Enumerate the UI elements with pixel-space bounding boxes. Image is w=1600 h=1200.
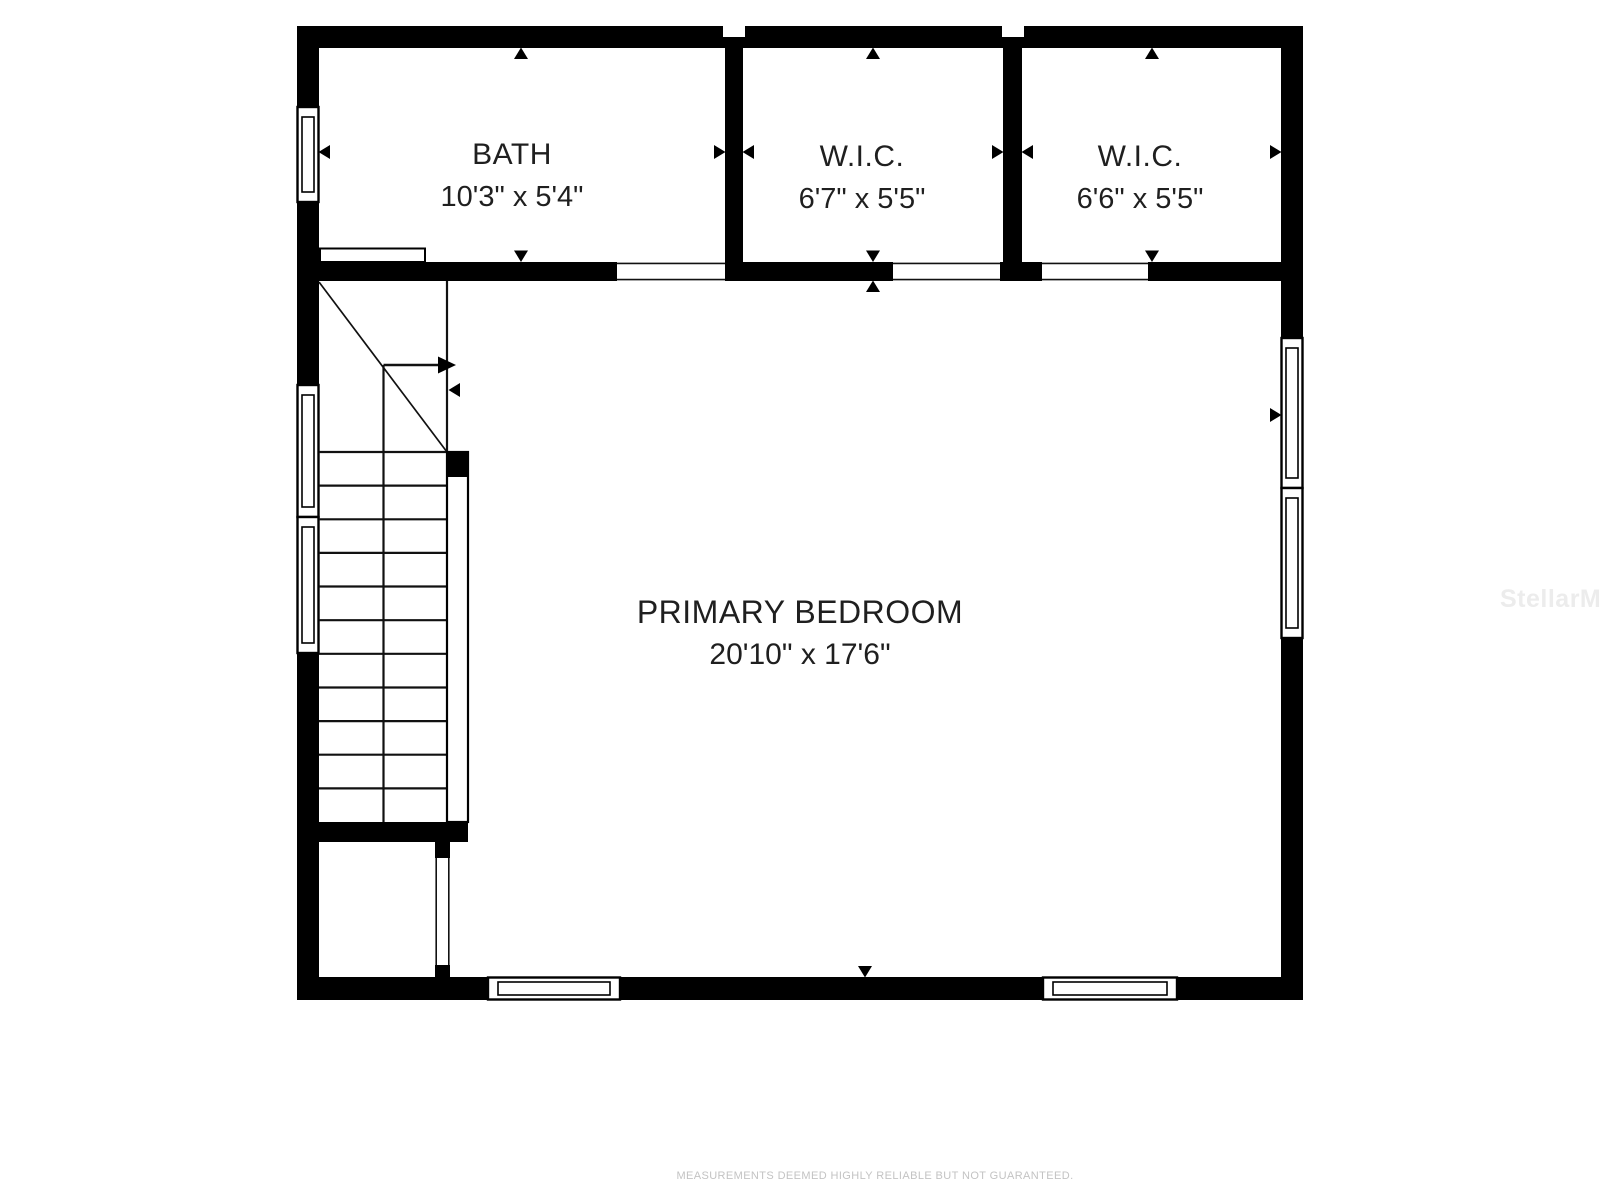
floor-plan-page: BATH 10'3" x 5'4" W.I.C. 6'7" x 5'5" W.I… — [0, 0, 1600, 1200]
room-name: W.I.C. — [1077, 136, 1204, 178]
measurement-marker-icon — [1145, 251, 1159, 263]
window-left-upper — [298, 385, 319, 517]
room-label-bath: BATH 10'3" x 5'4" — [441, 134, 584, 218]
interior-wall-stairs-south — [297, 822, 468, 842]
window-right-upper — [1282, 338, 1303, 488]
measurement-marker-icon — [1022, 145, 1034, 159]
window-bottom-right — [1043, 978, 1177, 1000]
measurement-marker-icon — [1270, 408, 1282, 422]
window-left-bath — [298, 107, 319, 202]
room-name: PRIMARY BEDROOM — [637, 590, 963, 634]
closet-under-stairs-door-opening — [435, 858, 450, 965]
room-dimensions: 10'3" x 5'4" — [441, 176, 584, 218]
measurement-marker-icon — [1270, 145, 1282, 159]
room-dimensions: 20'10" x 17'6" — [637, 634, 963, 676]
room-label-primary-bedroom: PRIMARY BEDROOM 20'10" x 17'6" — [637, 590, 963, 676]
measurement-marker-icon — [449, 383, 461, 397]
measurement-marker-icon — [714, 145, 726, 159]
interior-wall-wic-wic — [1003, 48, 1022, 262]
stairs-direction-arrow-icon — [384, 357, 457, 374]
stellar-mls-watermark: StellarMLS — [1500, 585, 1600, 614]
measurement-marker-icon — [866, 48, 880, 60]
measurement-marker-icon — [514, 48, 528, 60]
measurement-marker-icon — [992, 145, 1004, 159]
room-name: W.I.C. — [799, 136, 926, 178]
staircase — [319, 281, 468, 822]
measurement-marker-icon — [743, 145, 755, 159]
window-left-lower — [298, 517, 319, 653]
window-bottom-left — [488, 978, 620, 1000]
measurement-marker-icon — [319, 145, 331, 159]
room-dimensions: 6'7" x 5'5" — [799, 178, 926, 220]
room-dimensions: 6'6" x 5'5" — [1077, 178, 1204, 220]
interior-wall-bath-wic — [725, 48, 743, 281]
wic1-door-opening — [893, 262, 1000, 281]
stair-railing — [447, 452, 468, 822]
door-jamb-wall-upper — [435, 842, 450, 858]
interior-wall-south-of-closets — [297, 262, 1303, 281]
door-jamb-wall-lower — [435, 965, 450, 977]
wall-join-notch — [723, 26, 745, 37]
window-right-lower — [1282, 488, 1303, 638]
bath-door-opening — [617, 262, 725, 281]
wic2-door-opening — [1042, 262, 1148, 281]
exterior-wall-top — [297, 26, 1303, 48]
wall-join-notch — [1002, 26, 1024, 37]
room-label-wic-1: W.I.C. 6'7" x 5'5" — [799, 136, 926, 220]
measurement-marker-icon — [1145, 48, 1159, 60]
measurement-marker-icon — [866, 251, 880, 263]
room-name: BATH — [441, 134, 584, 176]
measurement-marker-icon — [858, 966, 872, 978]
measurement-marker-icon — [866, 281, 880, 293]
bath-counter — [320, 249, 425, 263]
measurement-marker-icon — [514, 251, 528, 263]
room-label-wic-2: W.I.C. 6'6" x 5'5" — [1077, 136, 1204, 220]
disclaimer-text: MEASUREMENTS DEEMED HIGHLY RELIABLE BUT … — [575, 1170, 1175, 1182]
